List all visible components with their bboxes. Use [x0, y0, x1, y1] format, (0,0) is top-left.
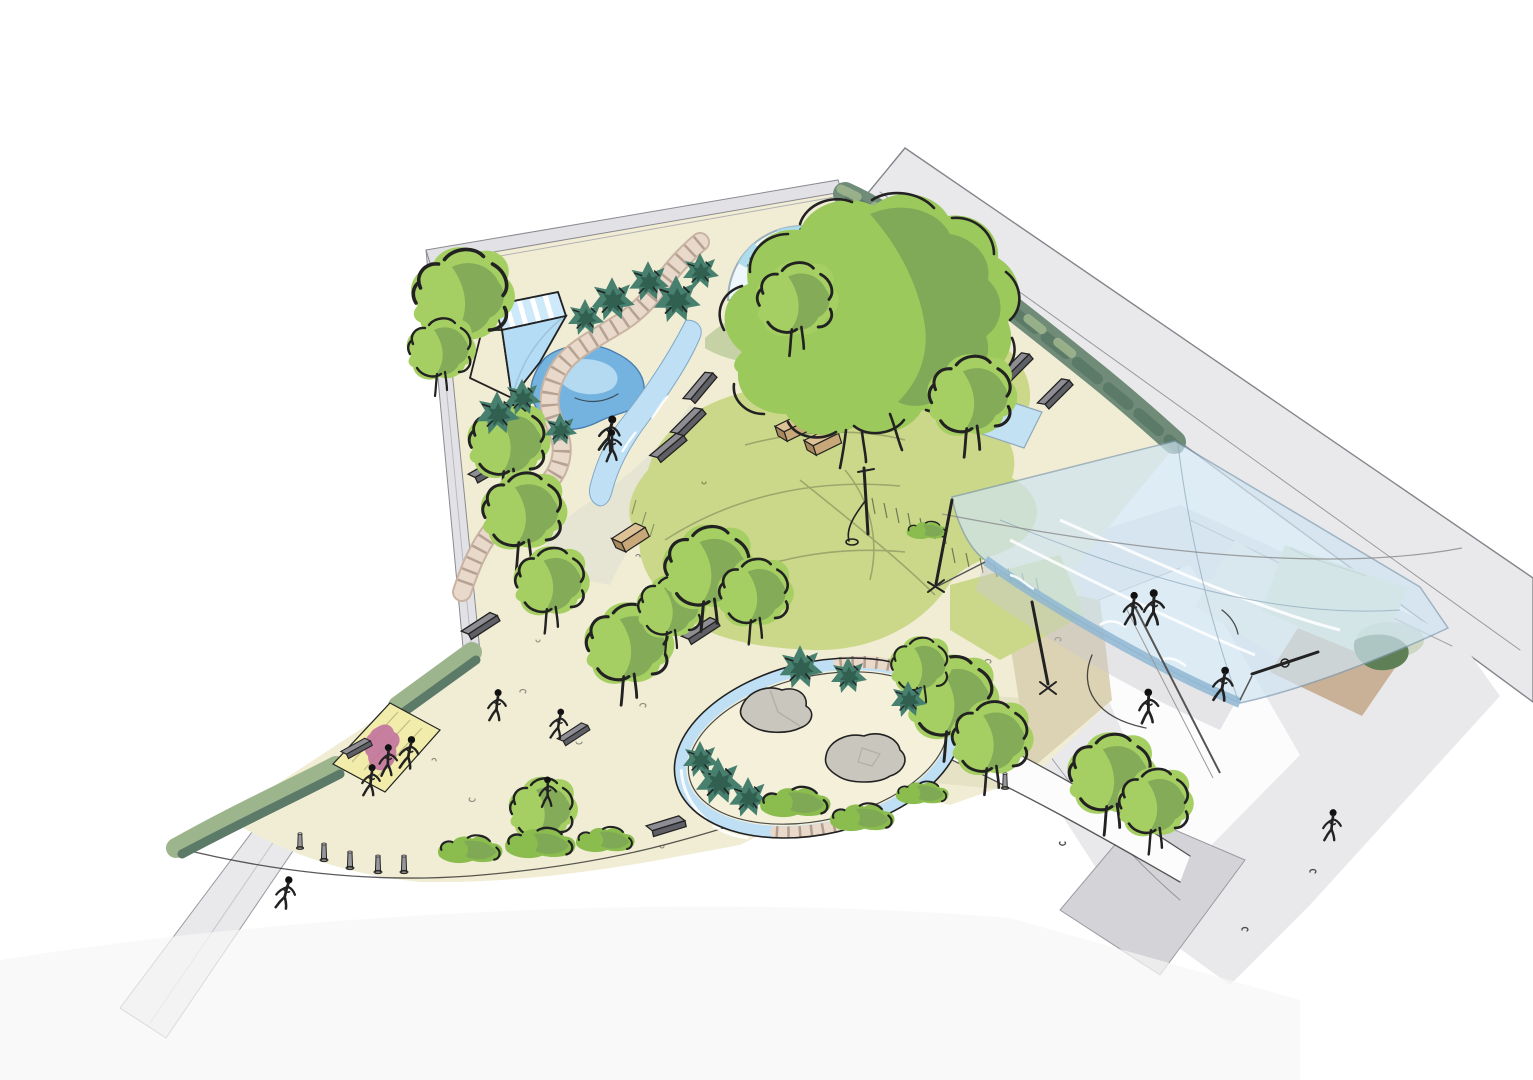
person: [275, 875, 298, 910]
boulder: [740, 688, 811, 732]
sketch-canvas: [0, 0, 1533, 1080]
boulder: [826, 734, 905, 782]
playground-concept-sketch: [0, 0, 1533, 1080]
